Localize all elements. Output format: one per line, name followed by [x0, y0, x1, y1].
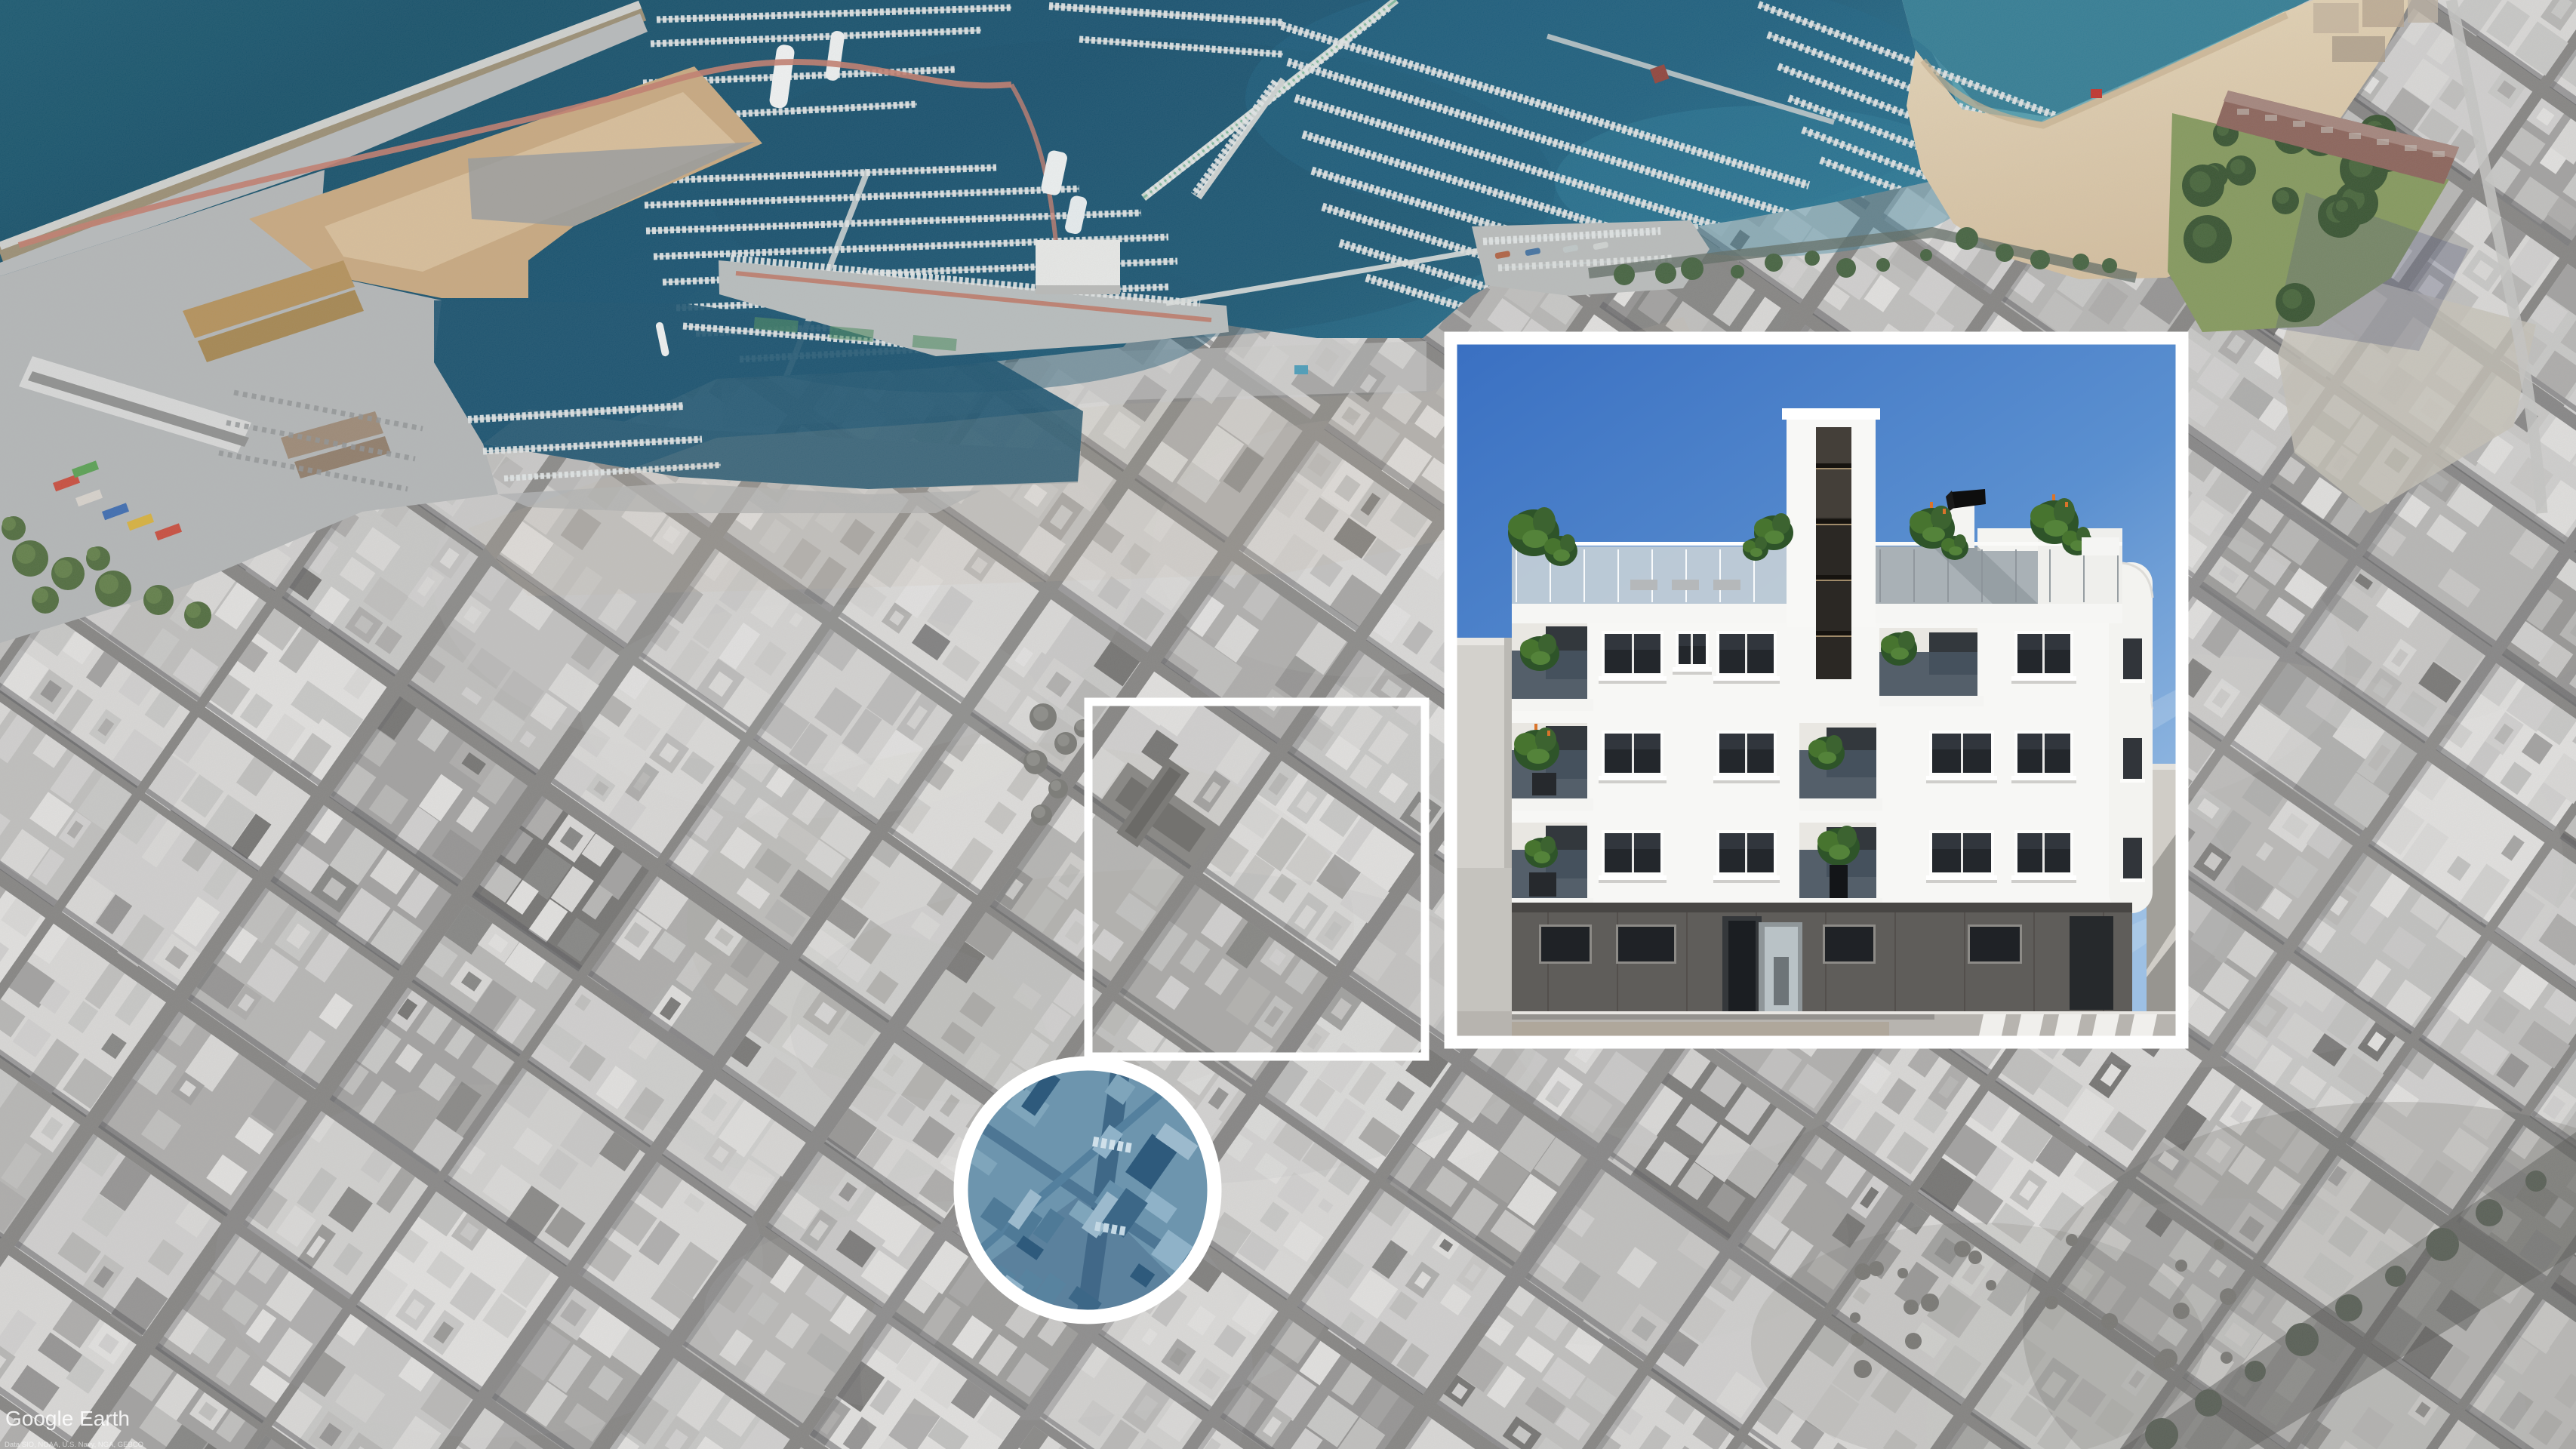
svg-text:Google Earth: Google Earth: [5, 1407, 130, 1430]
svg-text:Data SIO, NOAA, U.S. Navy, NGA: Data SIO, NOAA, U.S. Navy, NGA, GEBCO: [5, 1441, 143, 1449]
